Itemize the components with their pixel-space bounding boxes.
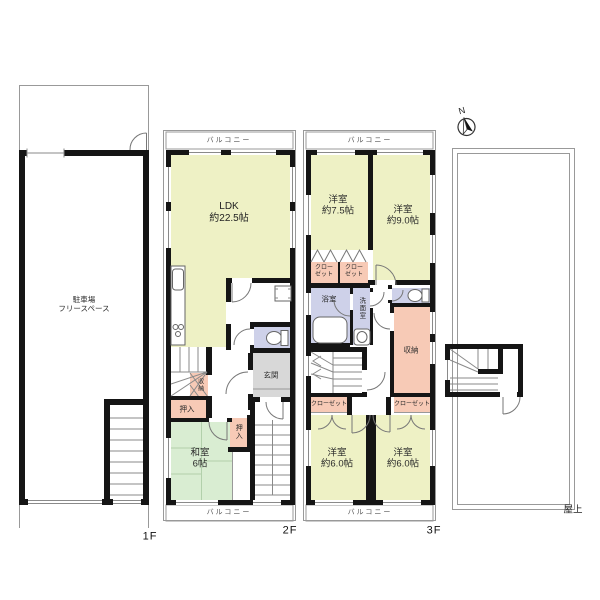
entry-door-arc	[130, 133, 147, 150]
roof-outline-inner	[458, 154, 570, 505]
sink-fixture	[173, 269, 184, 290]
balcony-label-2f-top: バルコニー	[207, 137, 252, 145]
washroom-label: 洗面室	[357, 297, 365, 320]
rooftop	[445, 149, 575, 510]
floor-plan-canvas: 駐車場フリースペース 1F バルコニー LDK約22.5帖 収納 玄関 押入 押…	[0, 0, 600, 600]
parking-walls	[19, 149, 149, 506]
bathroom-label: 浴室	[322, 295, 337, 304]
roof-outline-outer	[453, 149, 575, 510]
closet-d-label: クローゼット	[394, 401, 430, 408]
washbasin-fixture	[354, 329, 370, 345]
parking-label: 駐車場フリースペース	[58, 295, 109, 313]
balcony-label-2f-bottom: バルコニー	[207, 509, 252, 517]
closet-c-label: クローゼット	[311, 401, 347, 408]
oshiire-small-label: 押入	[234, 424, 242, 440]
genkan-label: 玄関	[264, 371, 279, 380]
washitsu-label: 和室6帖	[190, 448, 209, 471]
understairs-storage-label: 収納	[195, 378, 202, 392]
room-90-label: 洋室約9.0帖	[387, 205, 419, 228]
stairs-2f-down	[255, 420, 290, 495]
balcony-label-3f-top: バルコニー	[348, 137, 393, 145]
toilet-fixture-2f	[267, 331, 289, 346]
folding-closet-doors	[311, 250, 366, 262]
kitchen-counter	[171, 266, 185, 345]
closet-b-label: クローゼット	[345, 265, 363, 279]
floor-label-1f: 1F	[143, 530, 158, 543]
stairs-1f	[110, 418, 143, 495]
ldk-label: LDK約22.5帖	[209, 201, 248, 225]
toilet-fixture-3f	[408, 289, 429, 302]
floor-2f	[164, 131, 296, 522]
bathtub-fixture	[313, 317, 347, 343]
storage-3f-label: 収納	[404, 346, 419, 355]
balcony-label-3f-bottom: バルコニー	[348, 509, 393, 517]
room-60b-label: 洋室約6.0帖	[387, 448, 419, 471]
counter-fixture	[275, 286, 291, 301]
closet-a-label: クローゼット	[315, 265, 333, 279]
oshiire-label: 押入	[180, 405, 195, 414]
stairs-3f	[311, 352, 362, 393]
room-75-label: 洋室約7.5帖	[322, 195, 354, 218]
roof-label: 屋上	[563, 504, 582, 515]
floor-label-2f: 2F	[283, 524, 298, 537]
room-60a-label: 洋室約6.0帖	[321, 448, 353, 471]
compass-icon	[456, 115, 477, 137]
roof-stair-enclosure	[445, 344, 523, 414]
floor-label-3f: 3F	[427, 524, 442, 537]
